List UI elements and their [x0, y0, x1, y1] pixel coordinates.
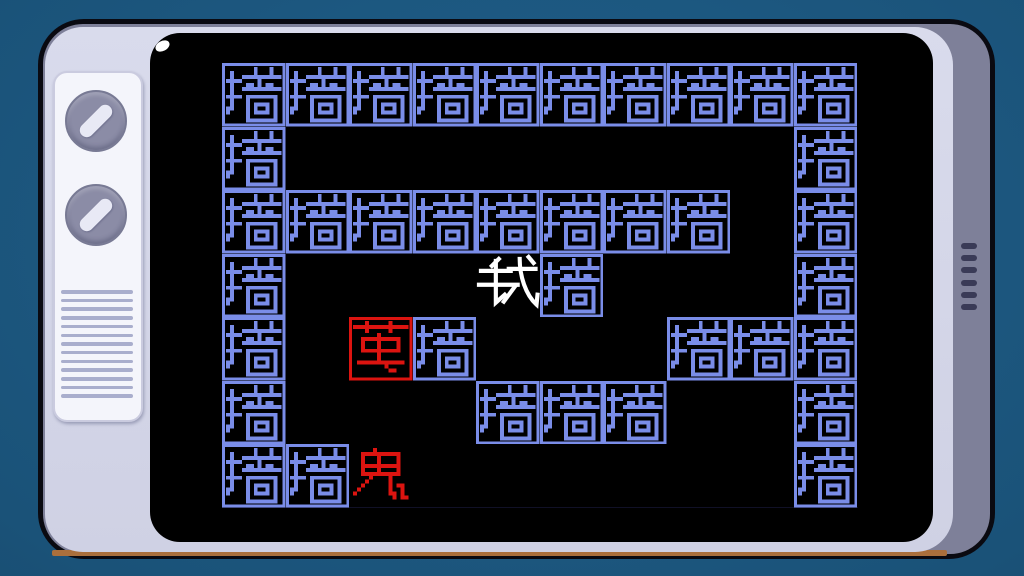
knob-icon[interactable]: [65, 90, 127, 152]
grille-line: [61, 386, 133, 390]
wall-tile: [540, 254, 604, 318]
grille-line: [61, 334, 133, 338]
player-tile: [476, 254, 540, 318]
game-board: [222, 63, 858, 508]
grille-line: [61, 316, 133, 320]
wall-tile: [349, 63, 413, 127]
grille-line: [61, 368, 133, 372]
wall-tile: [667, 190, 731, 254]
knob-pointer-icon: [77, 196, 115, 234]
wall-tile: [222, 317, 286, 381]
grille-line: [61, 325, 133, 329]
wall-tile: [413, 190, 477, 254]
wall-tile: [349, 190, 413, 254]
wall-tile: [603, 63, 667, 127]
grille-line: [61, 351, 133, 355]
wall-tile: [413, 317, 477, 381]
knob-icon[interactable]: [65, 184, 127, 246]
wall-tile: [222, 254, 286, 318]
grille-line: [61, 290, 133, 294]
grille-line: [61, 307, 133, 311]
wall-tile: [286, 63, 350, 127]
wall-tile: [476, 63, 540, 127]
wall-tile: [794, 63, 858, 127]
wall-tile: [794, 381, 858, 445]
vent-slot: [961, 255, 977, 261]
wall-tile: [794, 254, 858, 318]
wall-tile: [540, 190, 604, 254]
grille-line: [61, 377, 133, 381]
wall-tile: [794, 317, 858, 381]
grille-line: [61, 299, 133, 303]
wall-tile: [730, 317, 794, 381]
cocoon-tile: [349, 317, 413, 381]
wall-tile: [667, 63, 731, 127]
wall-tile: [286, 444, 350, 508]
vent-slot: [961, 280, 977, 286]
wall-tile: [222, 444, 286, 508]
wall-tile: [222, 127, 286, 191]
grille-line: [61, 394, 133, 398]
wall-tile: [222, 63, 286, 127]
grille-line: [61, 342, 133, 346]
wall-tile: [286, 190, 350, 254]
wall-tile: [794, 127, 858, 191]
ghost-char: 鬼: [0, 0, 1, 1]
vent-slot: [961, 292, 977, 298]
cocoon-char: 茧: [0, 0, 1, 1]
wall-tile: [222, 190, 286, 254]
wall-tile: [222, 381, 286, 445]
wall-tile: [667, 317, 731, 381]
grille-line: [61, 360, 133, 364]
wall-tile: [794, 190, 858, 254]
wall-tile: [603, 190, 667, 254]
wall-tile: [794, 444, 858, 508]
game-screen: [150, 33, 933, 542]
wall-tile: [540, 63, 604, 127]
wall-tile: [476, 190, 540, 254]
vent-slot: [961, 304, 977, 310]
player-char: 我: [0, 0, 1, 1]
wall-tile: [540, 381, 604, 445]
wall-char: 墙: [0, 0, 1, 1]
wall-tile: [413, 63, 477, 127]
wall-tile: [603, 381, 667, 445]
wall-tile: [476, 381, 540, 445]
ghost-tile: [349, 444, 413, 508]
vent-slot: [961, 243, 977, 249]
vent-slot: [961, 267, 977, 273]
wall-tile: [730, 63, 794, 127]
knob-pointer-icon: [77, 102, 115, 140]
